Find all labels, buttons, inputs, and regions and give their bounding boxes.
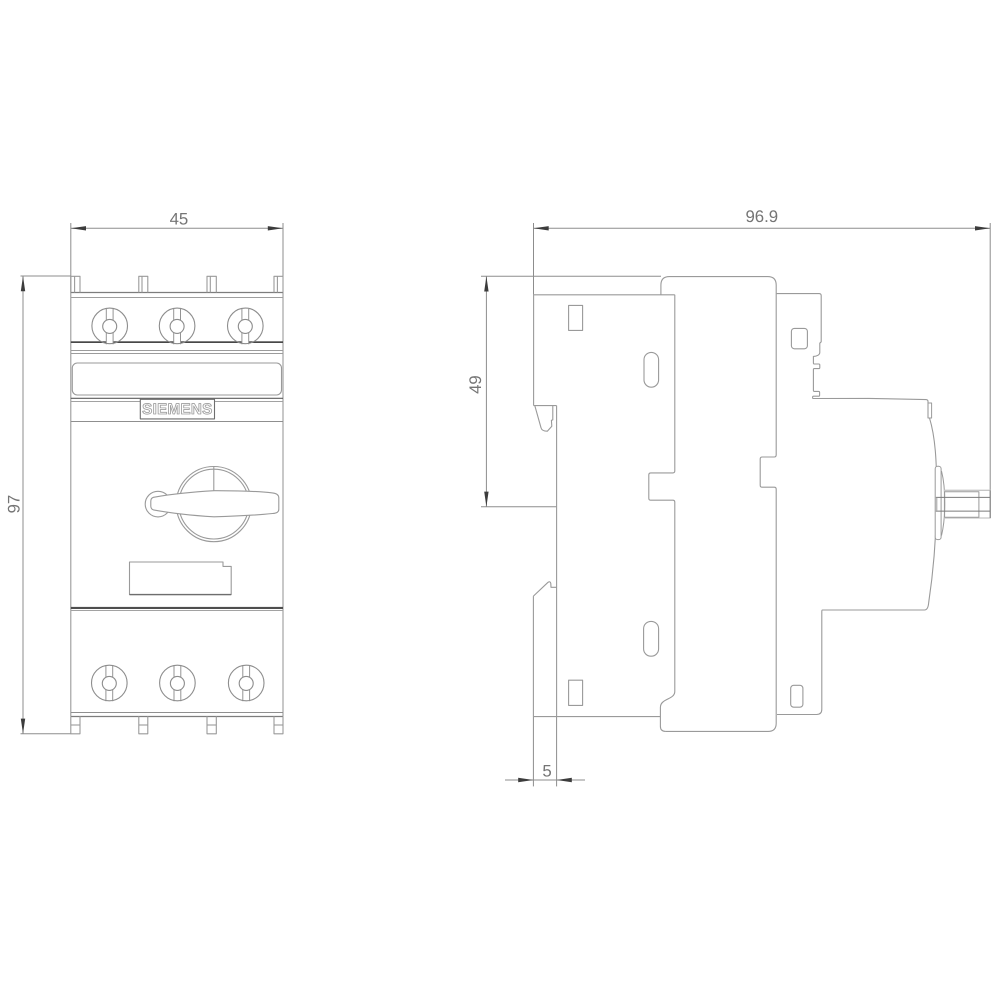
svg-text:96.9: 96.9: [745, 207, 778, 226]
svg-text:45: 45: [170, 209, 189, 228]
svg-text:97: 97: [4, 495, 23, 514]
svg-text:SIEMENS: SIEMENS: [142, 401, 212, 418]
svg-text:49: 49: [466, 375, 485, 394]
svg-text:5: 5: [542, 762, 551, 781]
